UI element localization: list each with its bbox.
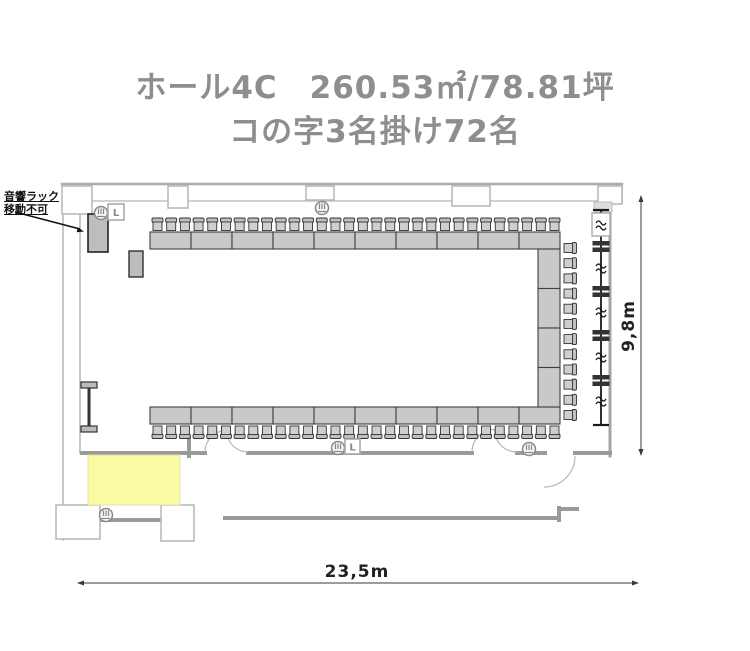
chair-right [564, 258, 577, 269]
chair-seat [564, 350, 573, 359]
column-block [161, 505, 194, 541]
dimension-width-label: 23,5m [17, 562, 697, 582]
table-top [437, 232, 478, 249]
chair-right [564, 334, 577, 345]
chair-top [179, 218, 190, 231]
pillars [62, 186, 622, 214]
chair-top [248, 218, 259, 231]
table-bottom [355, 407, 396, 424]
table-bottom [437, 407, 478, 424]
side-table [129, 251, 143, 277]
column-block [56, 505, 100, 539]
chair-seat [153, 222, 162, 231]
chair-seat [290, 222, 299, 231]
chair-bottom [508, 426, 519, 439]
partition-panel-box [592, 213, 610, 236]
chair-right [564, 288, 577, 299]
chair-seat [331, 222, 340, 231]
whiteboard-cap [81, 382, 97, 388]
chair-top [508, 218, 519, 231]
chair-seat [550, 222, 559, 231]
speaker-icon [316, 202, 329, 215]
chair-seat [194, 426, 203, 435]
pillar [306, 186, 334, 200]
chair-seat [413, 222, 422, 231]
chair-seat [167, 222, 176, 231]
chair-top [522, 218, 533, 231]
chair-bottom [426, 426, 437, 439]
chair-seat [167, 426, 176, 435]
table-top [314, 232, 355, 249]
chair-bottom [193, 426, 204, 439]
chair-top [494, 218, 505, 231]
chair-seat [536, 426, 545, 435]
chair-seat [317, 426, 326, 435]
chair-top [467, 218, 478, 231]
chair-seat [454, 426, 463, 435]
speaker-icon [332, 442, 345, 455]
partition-block [593, 293, 610, 298]
chair-seat [372, 426, 381, 435]
annotation-arrow [15, 212, 84, 232]
chair-seat [399, 222, 408, 231]
pillar [62, 186, 92, 214]
chair-seat [331, 426, 340, 435]
chair-top [344, 218, 355, 231]
chair-seat [564, 304, 573, 313]
chair-seat [235, 426, 244, 435]
chair-seat [564, 335, 573, 344]
dim-arrow [639, 449, 644, 456]
chair-seat [345, 222, 354, 231]
chair-seat [372, 222, 381, 231]
chair-seat [208, 426, 217, 435]
chair-seat [413, 426, 422, 435]
chair-seat [304, 222, 313, 231]
table-top [191, 232, 232, 249]
chair-bottom [439, 426, 450, 439]
partition-block [593, 330, 610, 335]
table-top [519, 232, 560, 249]
chair-bottom [234, 426, 245, 439]
chair-seat [564, 380, 573, 389]
chair-bottom [467, 426, 478, 439]
pillar [452, 186, 490, 206]
chair-bottom [166, 426, 177, 439]
chair-top [330, 218, 341, 231]
chair-top [439, 218, 450, 231]
chair-bottom [371, 426, 382, 439]
pillar [598, 186, 622, 204]
chair-bottom [207, 426, 218, 439]
chair-seat [550, 426, 559, 435]
table-bottom [232, 407, 273, 424]
chair-seat [180, 426, 189, 435]
chair-seat [523, 222, 532, 231]
table-bottom [150, 407, 191, 424]
chair-top [453, 218, 464, 231]
chair-right [564, 273, 577, 284]
chair-seat [317, 222, 326, 231]
chair-right [564, 364, 577, 375]
partition-block [593, 337, 610, 342]
chair-seat [495, 426, 504, 435]
chair-top [316, 218, 327, 231]
chair-seat [564, 274, 573, 283]
table-top [150, 232, 191, 249]
table-bottom [314, 407, 355, 424]
table-right [538, 289, 560, 329]
chair-top [289, 218, 300, 231]
chair-top [193, 218, 204, 231]
chair-seat [564, 411, 573, 420]
chair-right [564, 410, 577, 421]
chair-right [564, 394, 577, 405]
chair-right [564, 349, 577, 360]
chair-seat [454, 222, 463, 231]
chair-top [303, 218, 314, 231]
chair-seat [564, 365, 573, 374]
table-right [538, 249, 560, 289]
chair-seat [235, 222, 244, 231]
chair-bottom [535, 426, 546, 439]
chair-seat [509, 426, 518, 435]
table-top [232, 232, 273, 249]
chair-seat [564, 244, 573, 253]
dimension-height-label: 9,8m [619, 297, 639, 355]
chair-top [166, 218, 177, 231]
chair-seat [564, 319, 573, 328]
chair-seat [249, 426, 258, 435]
chair-top [535, 218, 546, 231]
chair-right [564, 318, 577, 329]
chair-bottom [398, 426, 409, 439]
table-bottom [191, 407, 232, 424]
chair-seat [495, 222, 504, 231]
chair-seat [249, 222, 258, 231]
chair-top [357, 218, 368, 231]
chair-seat [263, 222, 272, 231]
chair-bottom [344, 426, 355, 439]
partition-block [593, 241, 610, 246]
chair-top [262, 218, 273, 231]
chair-seat [468, 426, 477, 435]
table-right [538, 368, 560, 408]
chair-right [564, 243, 577, 254]
partition-block [593, 248, 610, 253]
speaker-icon [95, 207, 108, 220]
chair-top [426, 218, 437, 231]
table-bottom [273, 407, 314, 424]
chair-bottom [522, 426, 533, 439]
chair-bottom [494, 426, 505, 439]
chair-top [481, 218, 492, 231]
chair-seat [427, 426, 436, 435]
chair-seat [358, 426, 367, 435]
speaker-l-text: L [113, 208, 120, 219]
chair-top [234, 218, 245, 231]
chair-bottom [481, 426, 492, 439]
chair-bottom [303, 426, 314, 439]
chair-seat [509, 222, 518, 231]
chair-top [412, 218, 423, 231]
chair-bottom [316, 426, 327, 439]
speaker-icon [523, 443, 536, 456]
chair-bottom [248, 426, 259, 439]
pillar [168, 186, 188, 208]
chair-seat [564, 395, 573, 404]
speaker-icon [100, 509, 113, 522]
chair-bottom [330, 426, 341, 439]
chair-seat [276, 222, 285, 231]
chair-seat [399, 426, 408, 435]
chair-seat [304, 426, 313, 435]
table-bottom [478, 407, 519, 424]
chair-bottom [357, 426, 368, 439]
chair-top [207, 218, 218, 231]
whiteboard [81, 382, 97, 432]
chair-bottom [385, 426, 396, 439]
floorplan-page: ホール4C 260.53㎡/78.81坪 コの字3名掛け72名 音響ラック 移動… [0, 0, 750, 651]
chair-seat [180, 222, 189, 231]
table-bottom [519, 407, 560, 424]
chair-seat [386, 426, 395, 435]
sound-rack [88, 214, 108, 252]
chair-seat [440, 426, 449, 435]
chair-top [371, 218, 382, 231]
chair-top [220, 218, 231, 231]
dim-arrow [639, 195, 644, 202]
chair-top [549, 218, 560, 231]
table-right [538, 328, 560, 368]
single-door-corridor [544, 456, 575, 487]
whiteboard-cap [81, 426, 97, 432]
chair-right [564, 379, 577, 390]
chair-right [564, 303, 577, 314]
chair-top [398, 218, 409, 231]
chair-seat [221, 222, 230, 231]
chair-seat [564, 289, 573, 298]
chair-seat [194, 222, 203, 231]
chair-bottom [549, 426, 560, 439]
chair-top [275, 218, 286, 231]
chair-top [152, 218, 163, 231]
chair-seat [208, 222, 217, 231]
speaker-l-text: L [349, 443, 356, 454]
chair-seat [482, 222, 491, 231]
chair-seat [276, 426, 285, 435]
chair-seat [221, 426, 230, 435]
table-top [273, 232, 314, 249]
chair-bottom [179, 426, 190, 439]
chair-seat [386, 222, 395, 231]
chair-bottom [412, 426, 423, 439]
chair-top [385, 218, 396, 231]
partition-block [593, 375, 610, 380]
chair-seat [536, 222, 545, 231]
chair-bottom [262, 426, 273, 439]
chair-bottom [289, 426, 300, 439]
chair-seat [440, 222, 449, 231]
partition-block [593, 382, 610, 387]
table-top [396, 232, 437, 249]
table-top [355, 232, 396, 249]
table-top [478, 232, 519, 249]
chair-bottom [275, 426, 286, 439]
chair-seat [358, 222, 367, 231]
chair-seat [523, 426, 532, 435]
chair-bottom [220, 426, 231, 439]
furniture-layer [150, 218, 577, 439]
table-bottom [396, 407, 437, 424]
chair-seat [564, 259, 573, 268]
chair-seat [290, 426, 299, 435]
stage-mat [88, 455, 180, 505]
chair-bottom [152, 426, 163, 439]
chair-seat [263, 426, 272, 435]
chair-seat [468, 222, 477, 231]
partition-block [593, 286, 610, 291]
chair-seat [345, 426, 354, 435]
chair-seat [427, 222, 436, 231]
chair-seat [153, 426, 162, 435]
chair-seat [482, 426, 491, 435]
chair-bottom [453, 426, 464, 439]
